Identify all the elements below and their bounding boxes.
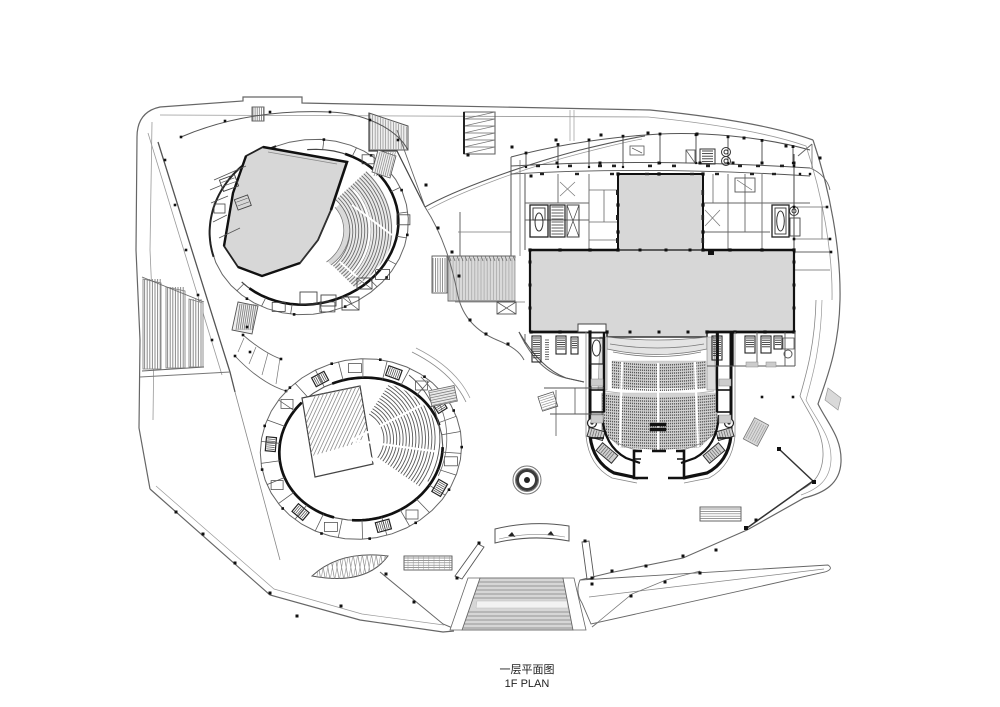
svg-text:一层平面图: 一层平面图 [500, 663, 555, 676]
svg-text:1F PLAN: 1F PLAN [505, 678, 550, 690]
